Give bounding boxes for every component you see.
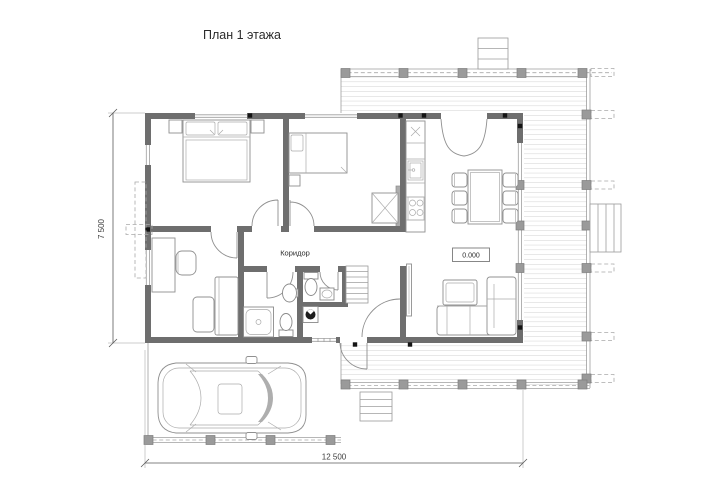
coffee-table — [443, 280, 477, 305]
bedroom1-furniture — [169, 120, 264, 182]
kitchen — [406, 121, 425, 232]
dining-set — [452, 170, 518, 224]
steps-top — [478, 38, 508, 69]
window-study-left — [146, 250, 149, 285]
door-terrace-dining — [441, 119, 487, 156]
door-wc — [320, 272, 338, 290]
tv — [407, 264, 412, 316]
dining-table — [468, 170, 502, 224]
wc-toilet — [304, 273, 318, 296]
floor-plan-canvas: 0.000 — [0, 0, 710, 502]
single-bed — [289, 133, 347, 173]
bathroom-fixtures — [244, 284, 299, 337]
double-bed — [183, 120, 250, 182]
carport — [144, 343, 341, 445]
dimension-width-label: 12 500 — [322, 453, 347, 462]
study-couch — [215, 277, 238, 335]
deck-right — [524, 113, 587, 385]
door-bedroom2 — [290, 200, 314, 226]
kitchen-counter — [406, 121, 425, 232]
wc-fixtures — [303, 273, 334, 323]
nightstand — [251, 120, 264, 133]
window-entry-bottom — [312, 338, 336, 342]
page-title: План 1 этажа — [203, 28, 281, 42]
steps-bottom — [360, 392, 392, 421]
deck-bottom — [341, 343, 524, 384]
elevation-label: 0.000 — [462, 253, 480, 260]
living-room: 0.000 — [407, 248, 517, 335]
bedroom2-furniture — [289, 133, 398, 223]
deck-top — [341, 73, 587, 113]
glass-wall-east — [516, 143, 524, 320]
car-mirror-right — [246, 433, 257, 440]
door-living-arc — [362, 299, 400, 337]
dimension-left: 7 500 — [97, 109, 145, 347]
washing-machine — [303, 307, 318, 323]
study-furniture — [152, 238, 238, 335]
stairs — [346, 266, 368, 303]
car-mirror-left — [246, 357, 257, 364]
bathroom-sink — [283, 284, 299, 302]
floor-plan-page: 0.000 — [0, 0, 710, 502]
car — [158, 357, 306, 440]
dimension-height-label: 7 500 — [97, 218, 106, 239]
desk — [152, 238, 175, 292]
window-bedroom1-left — [146, 145, 149, 165]
elevation-marker: 0.000 — [453, 248, 490, 262]
door-bedroom1 — [252, 200, 278, 226]
steps-right — [590, 204, 621, 252]
shower — [244, 307, 274, 337]
desk-chair — [176, 251, 196, 275]
door-study — [211, 232, 237, 258]
wc-sink — [320, 288, 334, 300]
nightstand — [169, 120, 182, 133]
ottoman — [193, 297, 214, 332]
window-bedroom1-top — [195, 115, 247, 118]
toilet — [279, 314, 293, 337]
corridor-label: Коридор — [280, 249, 310, 258]
nightstand — [289, 175, 300, 186]
wardrobe — [372, 193, 398, 223]
window-bedroom2-top — [305, 115, 357, 118]
